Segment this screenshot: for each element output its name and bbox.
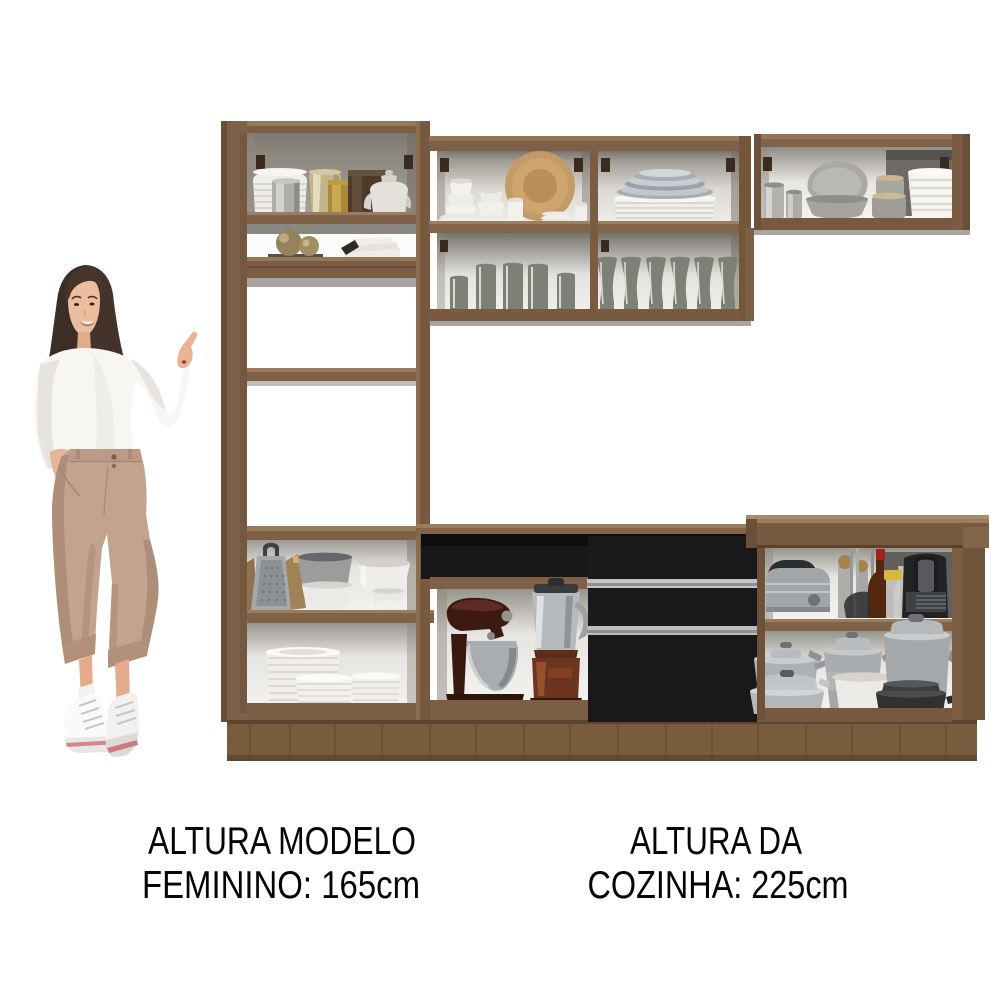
svg-text:FEMININO: 165cm: FEMININO: 165cm — [142, 864, 420, 907]
svg-text:COZINHA: 225cm: COZINHA: 225cm — [588, 864, 849, 907]
svg-text:ALTURA MODELO: ALTURA MODELO — [148, 820, 416, 863]
svg-text:ALTURA DA: ALTURA DA — [630, 820, 802, 863]
